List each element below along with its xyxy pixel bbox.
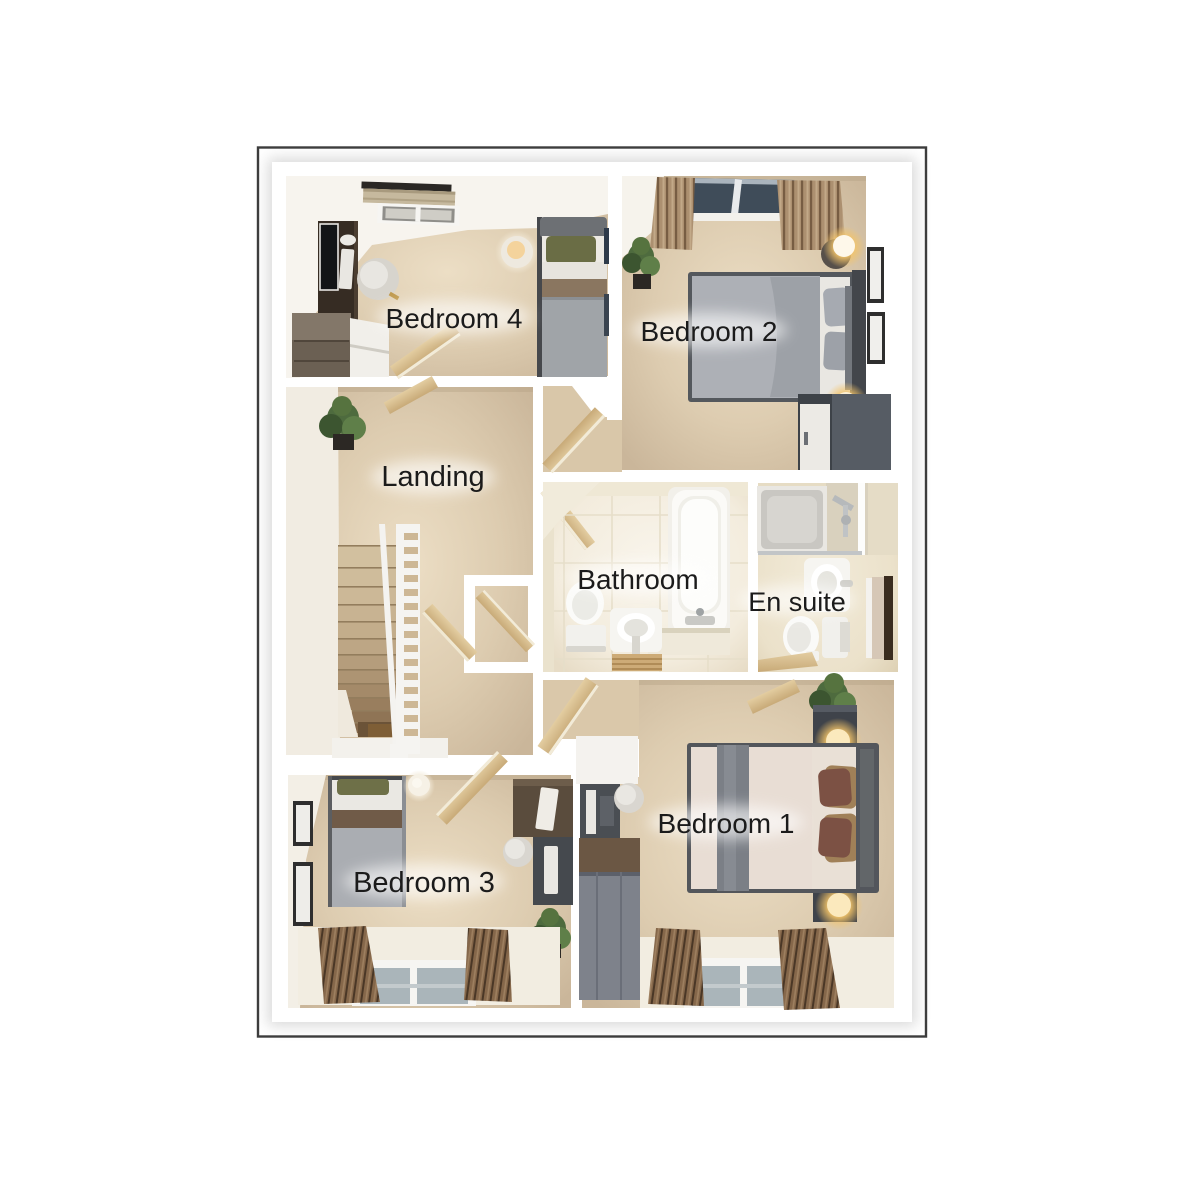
svg-text:Bedroom 4: Bedroom 4 [386,303,523,334]
svg-text:Bedroom 3: Bedroom 3 [353,867,495,899]
svg-text:Bedroom 1: Bedroom 1 [658,808,795,839]
svg-text:En suite: En suite [748,587,846,617]
svg-text:Bedroom 2: Bedroom 2 [641,316,778,347]
svg-text:Landing: Landing [381,461,484,493]
svg-text:Bathroom: Bathroom [577,564,698,595]
